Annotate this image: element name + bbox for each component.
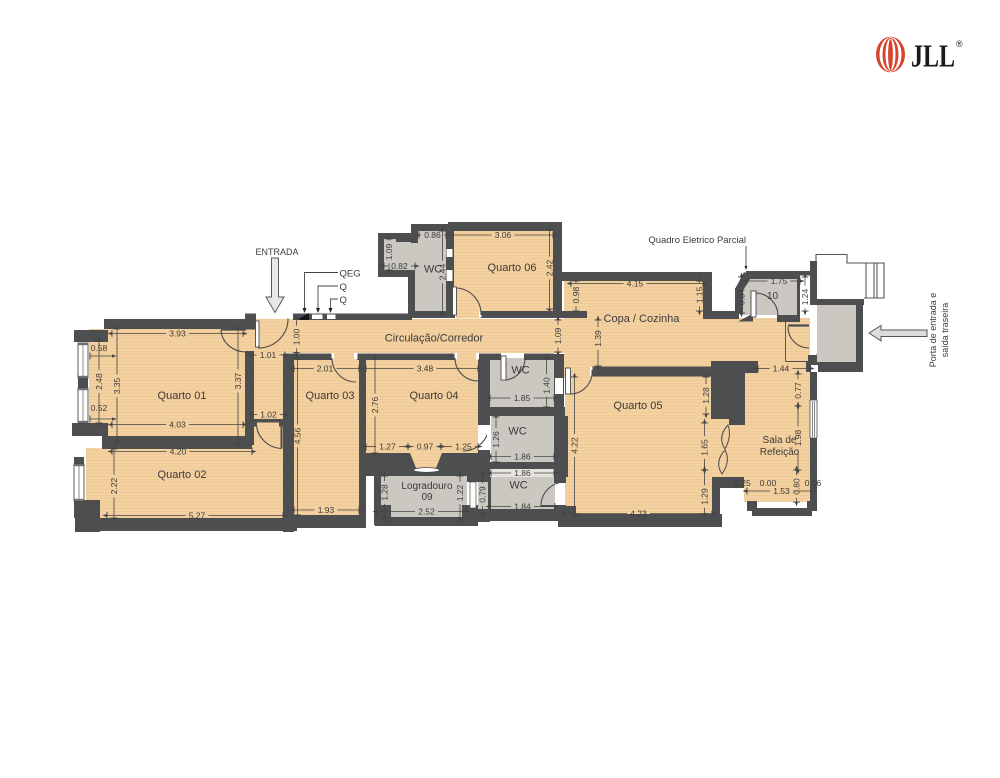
svg-text:0.80: 0.80 bbox=[792, 478, 802, 495]
svg-text:®: ® bbox=[956, 39, 963, 49]
svg-text:1.00: 1.00 bbox=[292, 328, 302, 345]
svg-text:1.02: 1.02 bbox=[260, 410, 277, 420]
svg-text:1.39: 1.39 bbox=[593, 330, 603, 347]
svg-text:1.29: 1.29 bbox=[700, 488, 710, 505]
svg-text:0.86: 0.86 bbox=[424, 230, 441, 240]
svg-text:0.77: 0.77 bbox=[793, 382, 803, 399]
svg-text:2.22: 2.22 bbox=[109, 477, 119, 494]
svg-text:1.86: 1.86 bbox=[514, 452, 531, 462]
svg-text:1.84: 1.84 bbox=[514, 502, 531, 512]
svg-text:4.23: 4.23 bbox=[630, 509, 647, 519]
svg-text:Copa / Cozinha: Copa / Cozinha bbox=[604, 313, 681, 325]
svg-text:Q: Q bbox=[340, 295, 347, 306]
svg-text:Quarto 03: Quarto 03 bbox=[306, 390, 355, 402]
svg-text:0.16: 0.16 bbox=[805, 478, 822, 488]
svg-text:1.01: 1.01 bbox=[260, 350, 277, 360]
svg-text:WC: WC bbox=[509, 480, 527, 492]
svg-text:QEG: QEG bbox=[340, 269, 361, 280]
svg-text:0.25: 0.25 bbox=[734, 478, 751, 488]
svg-text:Quadro Eletrico Parcial: Quadro Eletrico Parcial bbox=[648, 235, 746, 246]
svg-text:ENTRADA: ENTRADA bbox=[255, 247, 298, 257]
svg-text:1.15: 1.15 bbox=[695, 286, 705, 303]
svg-text:1.09: 1.09 bbox=[553, 327, 563, 344]
svg-text:3.37: 3.37 bbox=[233, 372, 243, 389]
svg-text:Quarto 04: Quarto 04 bbox=[410, 390, 459, 402]
svg-text:1.22: 1.22 bbox=[455, 484, 465, 501]
svg-text:4.15: 4.15 bbox=[627, 279, 644, 289]
svg-text:1.26: 1.26 bbox=[491, 431, 501, 448]
svg-text:2.44: 2.44 bbox=[438, 263, 448, 280]
svg-text:3.48: 3.48 bbox=[417, 364, 434, 374]
svg-text:1.85: 1.85 bbox=[514, 393, 531, 403]
svg-text:1.65: 1.65 bbox=[700, 439, 710, 456]
svg-text:Quarto 02: Quarto 02 bbox=[158, 469, 207, 481]
svg-text:1.44: 1.44 bbox=[773, 364, 790, 374]
svg-text:Porta de entrada e: Porta de entrada e bbox=[928, 293, 938, 368]
svg-text:1.28: 1.28 bbox=[380, 484, 390, 501]
svg-text:1.75: 1.75 bbox=[771, 276, 788, 286]
svg-text:4.56: 4.56 bbox=[293, 427, 303, 444]
svg-text:saída traseira: saída traseira bbox=[940, 303, 950, 358]
svg-text:Circulação/Corredor: Circulação/Corredor bbox=[385, 333, 484, 345]
svg-text:Quarto 01: Quarto 01 bbox=[158, 390, 207, 402]
svg-text:Refeição: Refeição bbox=[760, 447, 800, 458]
svg-text:1.86: 1.86 bbox=[514, 468, 531, 478]
svg-text:1.98: 1.98 bbox=[793, 429, 803, 446]
svg-text:JLL: JLL bbox=[911, 38, 955, 74]
svg-text:1.24: 1.24 bbox=[800, 288, 810, 305]
svg-text:5.27: 5.27 bbox=[189, 511, 206, 521]
svg-text:4.03: 4.03 bbox=[169, 420, 186, 430]
svg-text:09: 09 bbox=[421, 492, 433, 503]
svg-text:2.48: 2.48 bbox=[94, 373, 104, 390]
svg-text:2.52: 2.52 bbox=[418, 507, 435, 517]
svg-text:2.76: 2.76 bbox=[370, 396, 380, 413]
svg-text:0.98: 0.98 bbox=[571, 286, 581, 303]
svg-text:Quarto 06: Quarto 06 bbox=[488, 262, 537, 274]
svg-text:1.28: 1.28 bbox=[701, 387, 711, 404]
svg-text:0.79: 0.79 bbox=[478, 486, 488, 503]
svg-text:3.06: 3.06 bbox=[495, 230, 512, 240]
svg-text:2.01: 2.01 bbox=[317, 364, 334, 374]
svg-text:1.27: 1.27 bbox=[379, 442, 396, 452]
svg-text:1.40: 1.40 bbox=[542, 377, 552, 394]
svg-text:WC: WC bbox=[511, 365, 529, 377]
svg-text:4.22: 4.22 bbox=[570, 437, 580, 454]
svg-text:2.42: 2.42 bbox=[545, 259, 555, 276]
svg-text:3.35: 3.35 bbox=[112, 377, 122, 394]
svg-text:Sala de: Sala de bbox=[763, 435, 797, 446]
svg-text:0.84: 0.84 bbox=[737, 288, 747, 305]
svg-text:Quarto 05: Quarto 05 bbox=[614, 400, 663, 412]
svg-text:0.82: 0.82 bbox=[391, 261, 408, 271]
svg-text:Q: Q bbox=[340, 282, 347, 293]
svg-text:1.25: 1.25 bbox=[455, 442, 472, 452]
svg-text:0.97: 0.97 bbox=[417, 442, 434, 452]
svg-text:WC: WC bbox=[508, 426, 526, 438]
svg-text:0.00: 0.00 bbox=[760, 478, 777, 488]
svg-text:Logradouro: Logradouro bbox=[401, 481, 453, 492]
svg-text:3.93: 3.93 bbox=[169, 329, 186, 339]
svg-text:1.93: 1.93 bbox=[318, 505, 335, 515]
svg-text:10: 10 bbox=[767, 291, 779, 302]
svg-text:1.09: 1.09 bbox=[384, 243, 394, 260]
svg-text:4.20: 4.20 bbox=[170, 447, 187, 457]
